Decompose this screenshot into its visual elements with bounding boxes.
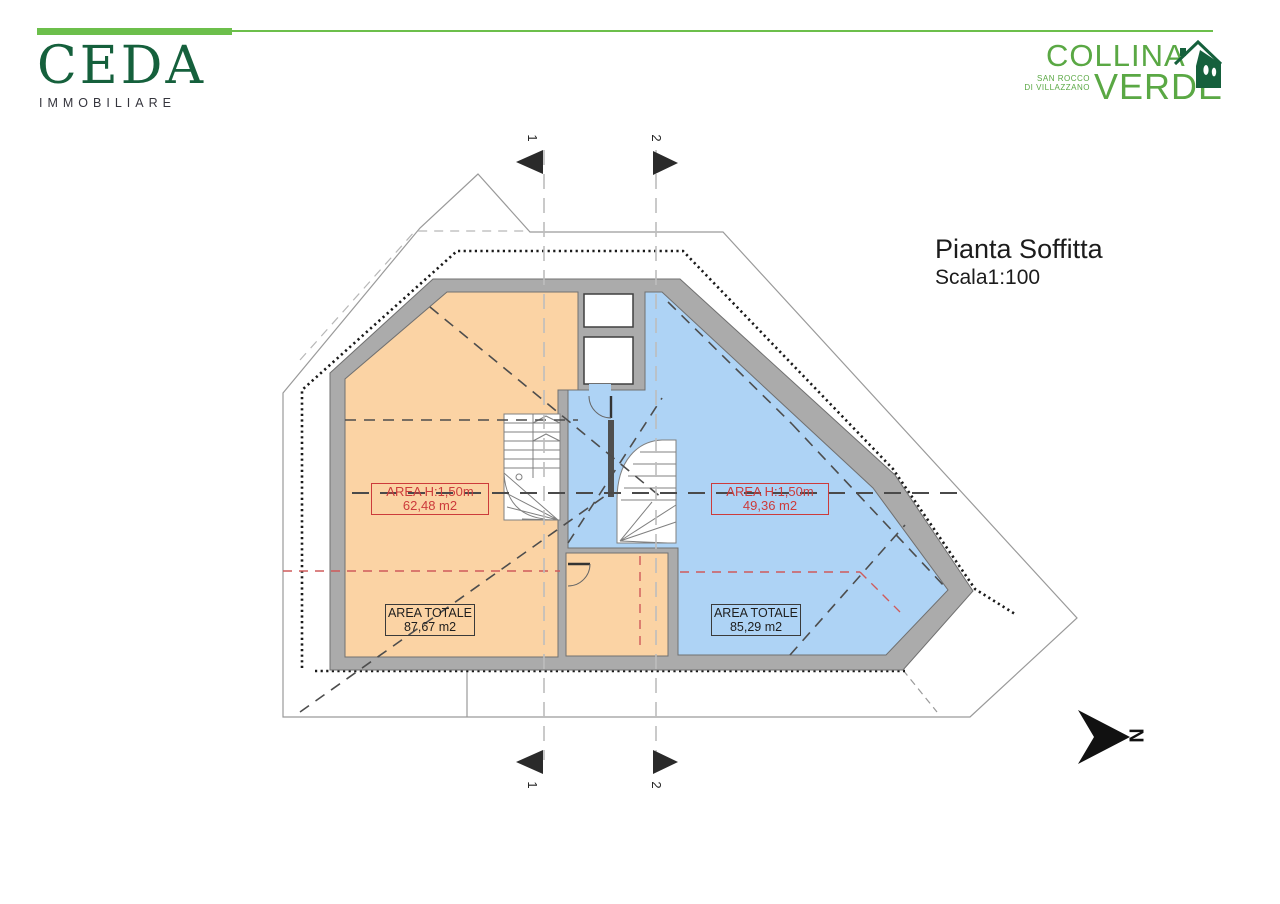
north-arrow-letter: N	[1124, 728, 1147, 742]
section2-top-triangle	[653, 151, 678, 175]
section1-top-number: 1	[524, 130, 540, 146]
label-area-totale-right-line1: AREA TOTALE	[714, 606, 798, 620]
section2-bottom-triangle	[653, 750, 678, 774]
skylight-shafts	[584, 294, 633, 384]
label-area-h-right-line2: 49,36 m2	[743, 498, 797, 513]
label-area-totale-left: AREA TOTALE 87,67 m2	[385, 604, 475, 636]
section2-bottom-number: 2	[648, 777, 664, 793]
label-area-totale-left-line2: 87,67 m2	[404, 620, 456, 634]
section1-bottom-number: 1	[524, 777, 540, 793]
section2-top-number: 2	[648, 130, 664, 146]
label-area-h-left: AREA H:1,50m 62,48 m2	[371, 483, 489, 515]
north-arrow-icon	[1078, 710, 1130, 764]
label-area-totale-right: AREA TOTALE 85,29 m2	[711, 604, 801, 636]
label-area-totale-right-line2: 85,29 m2	[730, 620, 782, 634]
label-area-h-left-line2: 62,48 m2	[403, 498, 457, 513]
label-area-h-right: AREA H:1,50m 49,36 m2	[711, 483, 829, 515]
room-bottom-orange	[566, 553, 668, 656]
floor-plan-drawing	[0, 0, 1280, 904]
label-area-h-right-line1: AREA H:1,50m	[726, 484, 813, 499]
label-area-h-left-line1: AREA H:1,50m	[386, 484, 473, 499]
section1-bottom-triangle	[516, 750, 543, 774]
label-area-totale-left-line1: AREA TOTALE	[388, 606, 472, 620]
stair-left	[504, 414, 560, 520]
section1-top-triangle	[516, 150, 543, 174]
